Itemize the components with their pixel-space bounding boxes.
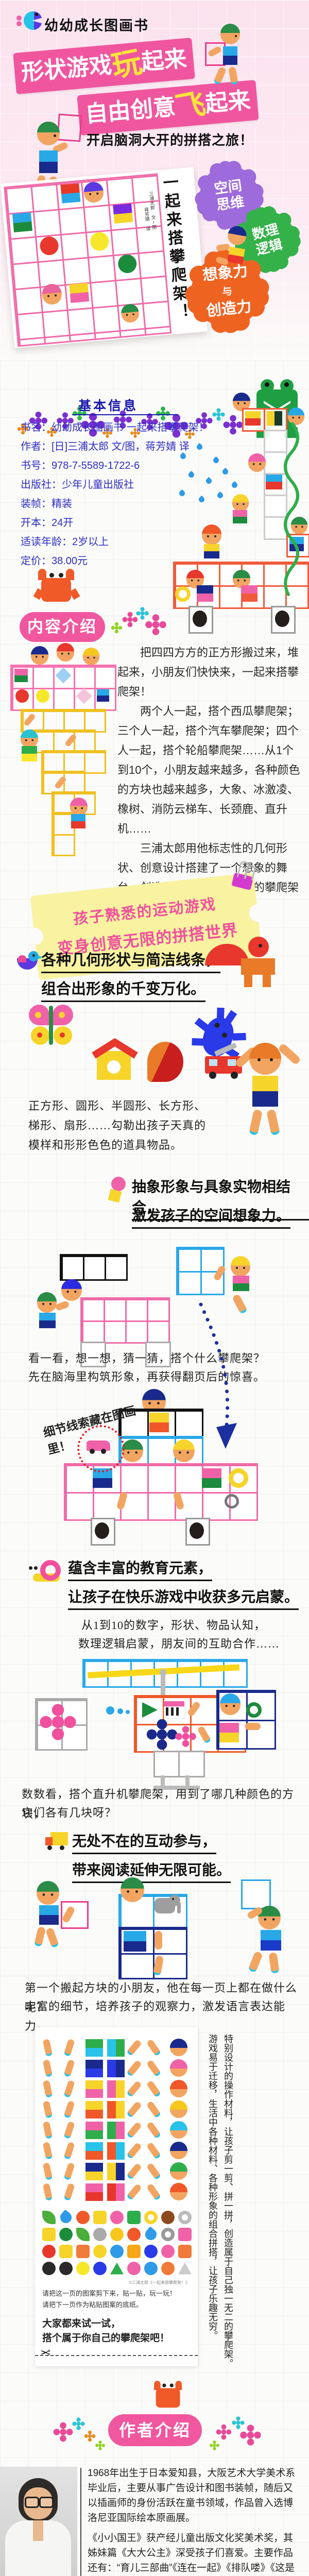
headline2-highlight: 飞 <box>172 83 209 129</box>
feature-c-heading-1: 蕴含丰富的教育元素， <box>68 1557 212 1581</box>
feature-c-line2: 数理逻辑启蒙，朋友间的互助合作…… <box>78 1634 305 1654</box>
section-badge-intro: 内容介绍 <box>20 612 105 642</box>
basic-info-underline <box>72 414 178 415</box>
author-bio: 1968年出生于日本爱知县，大阪艺术大学美术系毕业后，主要从事广告设计和图书装帧… <box>88 2466 299 2576</box>
brand-title: 幼幼成长图画书 <box>44 14 149 35</box>
cutout-tip-1: 请把这一页的图案剪下来，贴一贴，玩一玩！ <box>42 2288 176 2298</box>
vertical-caption-1: 特别设计的操作材料，让孩子剪一剪、拼一拼，创造属于自己独一无二的攀爬架。 <box>220 2034 236 2402</box>
crab-icon <box>35 569 78 607</box>
feature-a-heading-2: 组合出形象的千变万化。 <box>41 977 205 1002</box>
author-photo <box>0 2467 77 2576</box>
seesaw-grid-illustration <box>31 1659 278 1793</box>
cutout-cta-1: 大家都来试一试， <box>42 2316 121 2330</box>
basic-info-heading: 基本信息 <box>78 396 138 414</box>
author-divider <box>80 2468 81 2576</box>
acorn-illustration <box>147 1042 184 1085</box>
bus-climbing-frame-illustration <box>41 1391 257 1540</box>
ice-cream-climbing-frame-illustration <box>8 642 116 874</box>
cutout-cta-2: 搭个属于你自己的攀爬架吧！ <box>42 2330 169 2344</box>
bird-icon <box>17 951 41 974</box>
headline1-post: 起来 <box>141 46 188 75</box>
headline1-pre: 形状游戏 <box>20 53 113 86</box>
fish-logo-icon <box>16 9 39 32</box>
author-bio-p2: 《小小国王》获产经儿童出版文化奖美术奖，其姊妹篇《大大公主》深受孩子们喜爱。主要… <box>88 2531 299 2576</box>
feature-a-heading-1: 各种几何形状与简洁线条， <box>41 948 220 973</box>
horse-illustration <box>205 937 298 988</box>
headline2-pre: 自由创意 <box>84 94 177 127</box>
butterfly-illustration <box>29 1002 78 1053</box>
feature-c-line1: 从1到10的数字，形状、物品认知， <box>81 1616 298 1635</box>
cheering-boy-illustration <box>233 1035 300 1153</box>
cutout-pieces-grid <box>42 2038 190 2204</box>
kids-with-elephant-illustration <box>31 1879 299 1977</box>
running-kid-illustration <box>204 24 250 88</box>
feature-d-heading-1: 无处不在的互动参与， <box>72 1830 216 1854</box>
author-bio-p1: 1968年出生于日本爱知县，大阪艺术大学美术系毕业后，主要从事广告设计和图书装帧… <box>88 2466 299 2526</box>
ice-cream-icon <box>108 1177 129 1204</box>
intro-p2: 两个人一起，搭个西瓜攀爬架；三个人一起，搭个汽车攀爬架；四个人一起，搭个轮船攀爬… <box>117 702 302 839</box>
cutout-materials-card: ©三浦太郎《一起来搭攀爬架！》 请把这一页的图案剪下来，贴一贴，玩一玩！ 请把下… <box>35 2027 198 2366</box>
feature-c-heading-2: 让孩子在快乐游戏中收获多元启蒙。 <box>68 1586 299 1610</box>
climbing-tower-illustration <box>170 392 304 613</box>
feature-b-heading-2: 激发孩子的空间想象力。 <box>132 1205 290 1229</box>
feature-a-body: 正方形、圆形、半圆形、长方形、梯形、扇形……勾勒出孩子天真的模样和形形色色的道具… <box>28 1096 210 1155</box>
snail-icon <box>29 1560 62 1586</box>
truck-icon <box>45 1832 69 1854</box>
rope-squiggle <box>271 422 307 608</box>
section-badge-author: 作者介绍 <box>108 2414 202 2446</box>
house-illustration <box>92 1038 138 1082</box>
vertical-caption-2: 游戏易于迁移，生活中各种材料、各种形象的组合拼搭，让孩子乐趣无穷。 <box>205 2034 220 2402</box>
cutout-tip-2: 请把下一页作为粘贴图案的底纸。 <box>42 2299 143 2309</box>
feature-c-line4: 它们各有几块呀？ <box>22 1803 228 1823</box>
headline2-post: 起来 <box>204 88 252 116</box>
cutout-copyright: ©三浦太郎《一起来搭攀爬架！》 <box>35 2280 190 2285</box>
book-box-cover: 一起来搭攀爬架！ 三浦太郎 文/图 蒋芳婧 译 <box>1 167 208 348</box>
headline1-highlight: 玩 <box>108 41 145 88</box>
intro-paragraphs: 把四四方方的正方形搬过来，堆起来，小朋友们快快来，一起来搭攀爬架！ 两个人一起，… <box>117 643 302 917</box>
sub-headline: 开启脑洞大开的拼搭之旅！ <box>87 130 256 149</box>
cut-line <box>35 2355 198 2356</box>
product-detail-page: 幼幼成长图画书 形状游戏玩起来 自由创意飞起来 开启脑洞大开的拼搭之旅！ <box>0 0 309 2576</box>
intro-p1: 把四四方方的正方形搬过来，堆起来，小朋友们快快来，一起来搭攀爬架！ <box>117 643 302 702</box>
cutout-icons-grid <box>42 2211 197 2279</box>
scissors-icon: ✂ <box>40 2346 50 2361</box>
cutout-vertical-caption: 特别设计的操作材料，让孩子剪一剪、拼一拼，创造属于自己独一无二的攀爬架。 游戏易… <box>204 2034 236 2402</box>
crab-icon <box>152 2381 185 2410</box>
